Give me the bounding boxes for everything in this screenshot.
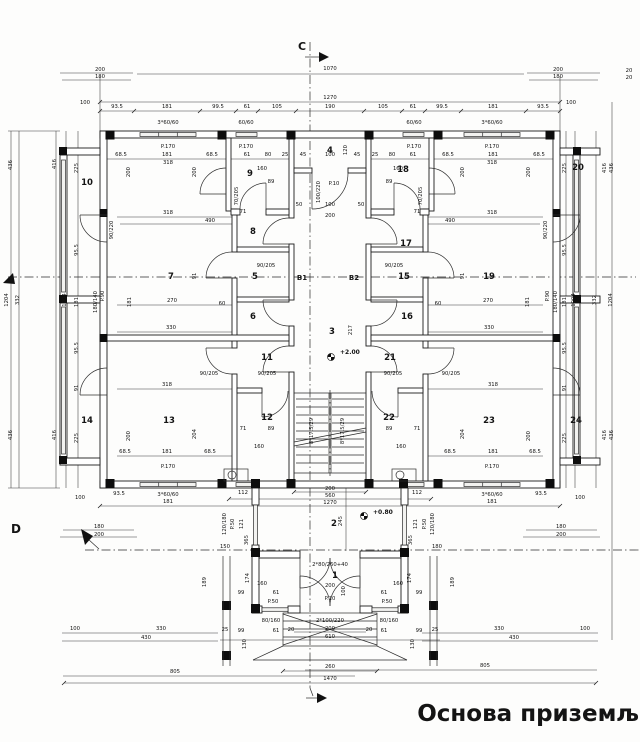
dim-label: 100 [80, 100, 91, 106]
dim-label: 1004 [571, 293, 577, 307]
dim-label: 204 [460, 428, 466, 439]
axis-b1-label: B1 [297, 274, 307, 282]
dim-label: 180/140 [553, 290, 559, 313]
dim-label: 61 [244, 104, 251, 110]
room-number: 19 [483, 272, 495, 282]
wing-walls [60, 148, 600, 465]
dim-label: 332 [592, 295, 598, 305]
dim-label: 80/160 [262, 618, 281, 624]
dim-label: 91 [562, 385, 568, 392]
dim-label: 181 [488, 104, 498, 110]
dim-label: 90/205 [200, 371, 219, 377]
dim-label: 70/205 [234, 187, 240, 206]
dim-label: 25 [372, 152, 379, 158]
room-number: 15 [398, 272, 410, 282]
dim-label: 95.5 [562, 244, 568, 256]
dim-label: 2*80/260+40 [312, 562, 348, 568]
dim-label: 200 [526, 430, 532, 441]
dim-label: 436 [8, 429, 14, 440]
dim-label: 180 [95, 74, 106, 80]
dim-label: 61 [410, 104, 417, 110]
dim-label: 180 [432, 544, 443, 550]
dim-label: 71 [240, 209, 247, 215]
dim-label: 225 [74, 433, 80, 443]
dim-label: 416 [52, 429, 58, 440]
room-number: 5 [252, 272, 258, 282]
dim-label: 93.5 [111, 104, 123, 110]
room-number: 13 [163, 416, 175, 426]
dim-label: 70/205 [418, 187, 424, 206]
dim-label: P.50 [268, 599, 279, 605]
section-c-arrow [319, 52, 329, 62]
dim-label: 245 [338, 516, 344, 526]
dim-label: 60/60 [238, 120, 254, 126]
dim-label: 225 [562, 163, 568, 173]
dim-label: 130 [410, 638, 416, 649]
dim-label: 25 [432, 627, 439, 633]
dim-label: 160 [257, 166, 268, 172]
dim-label: 365 [244, 535, 250, 545]
dim-label: 416 [52, 158, 58, 169]
dim-label: 200 [556, 532, 567, 538]
dim-label: 160 [396, 444, 407, 450]
dim-label: P.90 [100, 290, 106, 301]
dim-label: 189 [450, 577, 456, 587]
dim-label: 181 [162, 152, 172, 158]
dim-label: 61 [273, 590, 280, 596]
dim-label: 200 [526, 166, 532, 177]
dim-label: P.170 [239, 144, 254, 150]
dim-label: 50 [296, 202, 303, 208]
dim-label: 60 [435, 301, 442, 307]
dim-label: 90/205 [257, 263, 276, 269]
dim-label: 91 [74, 385, 80, 392]
room-number: 14 [81, 416, 93, 426]
dim-label: 68.5 [115, 152, 127, 158]
dim-label: 160 [393, 581, 404, 587]
dim-label: 45 [354, 152, 361, 158]
dim-label: 181 [562, 297, 568, 307]
dim-label: 181 [488, 449, 498, 455]
dim-label: P.170 [485, 144, 500, 150]
dim-label: 80/160 [380, 618, 399, 624]
dim-label: 60 [219, 301, 226, 307]
dim-label: 805 [170, 669, 180, 675]
room-number: 4 [327, 146, 333, 156]
dim-label: 80 [265, 152, 272, 158]
dim-label: 100 [341, 585, 347, 596]
dim-label: P.170 [407, 144, 422, 150]
dim-label: 200 [325, 213, 336, 219]
dim-label: 120/180 [430, 512, 436, 535]
dim-label: 68.5 [119, 449, 131, 455]
dim-label: 50 [358, 202, 365, 208]
dim-label: 180/140 [93, 290, 99, 313]
dim-label: 180 [94, 524, 105, 530]
room-number: 8 [250, 227, 256, 237]
dim-label: 20 [626, 68, 633, 74]
room-number: 20 [572, 163, 584, 173]
axis-arrow [3, 273, 15, 284]
dim-label: 80 [389, 152, 396, 158]
dim-label: 121 [239, 519, 245, 529]
dim-label: 2*100/220 [316, 618, 345, 624]
dim-label: 25 [282, 152, 289, 158]
dim-label: 200 [553, 67, 564, 73]
dim-label: 99.5 [436, 104, 448, 110]
drawing-title: Основа приземља [417, 701, 640, 727]
dim-label: 120/180 [222, 512, 228, 535]
dim-label: 436 [609, 162, 615, 173]
dim-label: 93.5 [535, 491, 547, 497]
dim-label: 1204 [4, 293, 10, 307]
dim-label: 200 [126, 430, 132, 441]
door-swings [80, 168, 580, 606]
dim-label: 20 [626, 75, 633, 81]
dim-label: 200 [460, 166, 466, 177]
dim-label: 490 [445, 218, 456, 224]
dim-label: 225 [562, 433, 568, 443]
dim-label: 3*60/60 [157, 120, 179, 126]
dim-label: 90/220 [543, 220, 549, 239]
room-number: 6 [250, 312, 256, 322]
dimension-and-room-labels: 20018010702001802020127093.518199.561105… [4, 66, 633, 682]
dim-label: 45 [300, 152, 307, 158]
dim-label: P.170 [161, 464, 176, 470]
dim-label: 416 [602, 162, 608, 173]
dim-label: P.50 [382, 599, 393, 605]
room-number: 10 [81, 178, 93, 188]
dim-label: 430 [141, 635, 152, 641]
dim-label: 318 [487, 210, 498, 216]
dim-label: 200 [325, 626, 336, 632]
dim-label: 90/205 [385, 263, 404, 269]
level-label: +2.00 [340, 349, 360, 356]
room-number: 24 [570, 416, 582, 426]
axis-b2-label: B2 [349, 274, 359, 282]
room-number: 21 [384, 353, 396, 363]
room-number: 7 [168, 272, 174, 282]
dim-label: 181 [162, 104, 172, 110]
dim-label: 270 [483, 298, 494, 304]
dim-label: 330 [484, 325, 495, 331]
dim-label: 100 [325, 202, 336, 208]
dim-label: 100 [70, 626, 81, 632]
floor-plan-drawing: C D B1 B2 Основа приземља 20018010702001… [0, 0, 640, 742]
dim-label: 112 [238, 490, 248, 496]
dim-label: 68.5 [529, 449, 541, 455]
dim-label: P.50 [422, 518, 428, 529]
dim-label: 99 [416, 628, 423, 634]
dim-label: 90/205 [258, 371, 277, 377]
dim-label: 68.5 [444, 449, 456, 455]
dim-label: 318 [162, 382, 173, 388]
dim-label: 90/205 [384, 371, 403, 377]
dim-label: 61 [381, 590, 388, 596]
dim-label: 95.5 [74, 244, 80, 256]
dim-label: 200 [325, 583, 336, 589]
dim-label: 95.5 [562, 342, 568, 354]
dim-label: 3*60/60 [481, 492, 503, 498]
dim-label: 318 [163, 210, 174, 216]
dim-label: 130 [242, 638, 248, 649]
dim-label: P.90 [545, 290, 551, 301]
dim-label: 181 [487, 499, 497, 505]
dim-label: 105 [378, 104, 388, 110]
dim-label: 93.5 [537, 104, 549, 110]
dim-label: 71 [414, 426, 421, 432]
dim-label: 190 [325, 104, 336, 110]
dim-label: 180 [553, 74, 564, 80]
dim-label: 332 [15, 295, 21, 305]
section-d-label: D [11, 522, 21, 536]
dim-label: P.50 [230, 518, 236, 529]
dim-label: 174 [245, 572, 251, 583]
dim-label: 90/220 [109, 220, 115, 239]
dim-label: 330 [166, 325, 177, 331]
dim-label: 181 [127, 297, 133, 307]
dim-label: 3*60/60 [481, 120, 503, 126]
dim-label: 181 [525, 297, 531, 307]
section-c-bottom-arrow [317, 693, 327, 703]
dim-label: 61 [381, 628, 388, 634]
dim-label: 174 [407, 572, 413, 583]
dim-label: 416 [602, 429, 608, 440]
dim-label: 330 [156, 626, 167, 632]
dim-label: 20 [366, 627, 373, 633]
dim-label: 89 [268, 179, 275, 185]
dim-label: 99 [416, 590, 423, 596]
dim-label: 160 [257, 581, 268, 587]
dim-label: 181 [74, 297, 80, 307]
dim-label: 365 [408, 535, 414, 545]
room-number: 16 [401, 312, 413, 322]
dim-label: 99 [238, 590, 245, 596]
dim-label: 1070 [323, 66, 337, 72]
dim-label: 1204 [608, 293, 614, 307]
dim-label: 490 [205, 218, 216, 224]
dim-label: 71 [240, 426, 247, 432]
room-number: 23 [483, 416, 495, 426]
dim-label: 120 [343, 144, 349, 155]
dim-label: 8*17.5/29 [309, 418, 315, 444]
dim-label: 89 [268, 426, 275, 432]
dim-label: 68.5 [206, 152, 218, 158]
dim-label: 200 [192, 166, 198, 177]
dim-label: 68.5 [533, 152, 545, 158]
dim-label: 89 [386, 179, 393, 185]
room-number: 11 [261, 353, 273, 363]
dim-label: P.170 [161, 144, 176, 150]
room-number: 9 [247, 169, 253, 179]
dim-label: 89 [386, 426, 393, 432]
dim-label: 91 [460, 273, 466, 280]
dim-label: 330 [494, 626, 505, 632]
dim-label: 160 [254, 444, 265, 450]
dim-label: 200 [94, 532, 105, 538]
dim-label: 225 [74, 163, 80, 173]
room-number: 1 [332, 571, 338, 581]
dim-label: 217 [348, 325, 354, 335]
dim-label: 318 [488, 382, 499, 388]
dim-label: 260 [325, 664, 336, 670]
dim-label: 181 [488, 152, 498, 158]
dim-label: 61 [273, 628, 280, 634]
dim-label: 204 [192, 428, 198, 439]
dim-label: 100 [575, 495, 586, 501]
dim-label: 60/60 [406, 120, 422, 126]
dim-label: 436 [8, 159, 14, 170]
dim-label: 93.5 [113, 491, 125, 497]
room-number: 3 [329, 327, 335, 337]
room-number: 18 [397, 165, 409, 175]
dim-label: 95.5 [74, 342, 80, 354]
dim-label: 200 [126, 166, 132, 177]
dim-label: 318 [487, 160, 498, 166]
level-label: +0.80 [373, 509, 393, 516]
dim-label: 105 [272, 104, 282, 110]
dim-label: 8*17.5/29 [340, 418, 346, 444]
section-c-label: C [298, 40, 306, 53]
dim-label: 91 [192, 273, 198, 280]
dim-label: 318 [163, 160, 174, 166]
room-number: 2 [331, 519, 337, 529]
room-number: 12 [261, 413, 273, 423]
dim-label: 436 [609, 429, 615, 440]
dim-label: 610 [325, 634, 336, 640]
dim-label: 180 [556, 524, 567, 530]
dim-label: 112 [412, 490, 422, 496]
dim-label: 270 [167, 298, 178, 304]
dim-label: 71 [414, 209, 421, 215]
dim-label: P.170 [485, 464, 500, 470]
dim-label: 200 [325, 486, 336, 492]
dim-label: 200 [95, 67, 106, 73]
dim-label: 121 [413, 519, 419, 529]
room-number: 17 [400, 239, 412, 249]
dim-label: 90/205 [442, 371, 461, 377]
dim-label: 68.5 [442, 152, 454, 158]
scanned-floor-plan-page: C D B1 B2 Основа приземља 20018010702001… [0, 0, 640, 742]
dim-label: 1270 [323, 95, 337, 101]
dim-label: 1270 [323, 500, 337, 506]
dim-label: P.10 [329, 181, 340, 187]
dim-label: P.10 [325, 596, 336, 602]
dim-label: 100 [580, 626, 591, 632]
dim-label: 99 [238, 628, 245, 634]
dim-label: 150 [220, 544, 231, 550]
dim-label: 560 [325, 493, 336, 499]
dim-label: 430 [509, 635, 520, 641]
room-number: 22 [383, 413, 395, 423]
dim-label: 100/220 [316, 180, 322, 203]
dim-label: 1470 [323, 676, 337, 682]
dim-label: 99.5 [212, 104, 224, 110]
dim-label: 68.5 [204, 449, 216, 455]
dim-label: 189 [202, 577, 208, 587]
dim-label: 100 [75, 495, 86, 501]
dim-label: 3*60/60 [157, 492, 179, 498]
dim-label: 20 [288, 627, 295, 633]
dim-label: 805 [480, 663, 490, 669]
dim-label: 181 [162, 449, 172, 455]
dim-label: 25 [222, 627, 229, 633]
dim-label: 100 [566, 100, 577, 106]
dim-label: 61 [244, 152, 251, 158]
dim-label: 181 [163, 499, 173, 505]
dim-label: 61 [410, 152, 417, 158]
dim-label: 1004 [62, 293, 68, 307]
